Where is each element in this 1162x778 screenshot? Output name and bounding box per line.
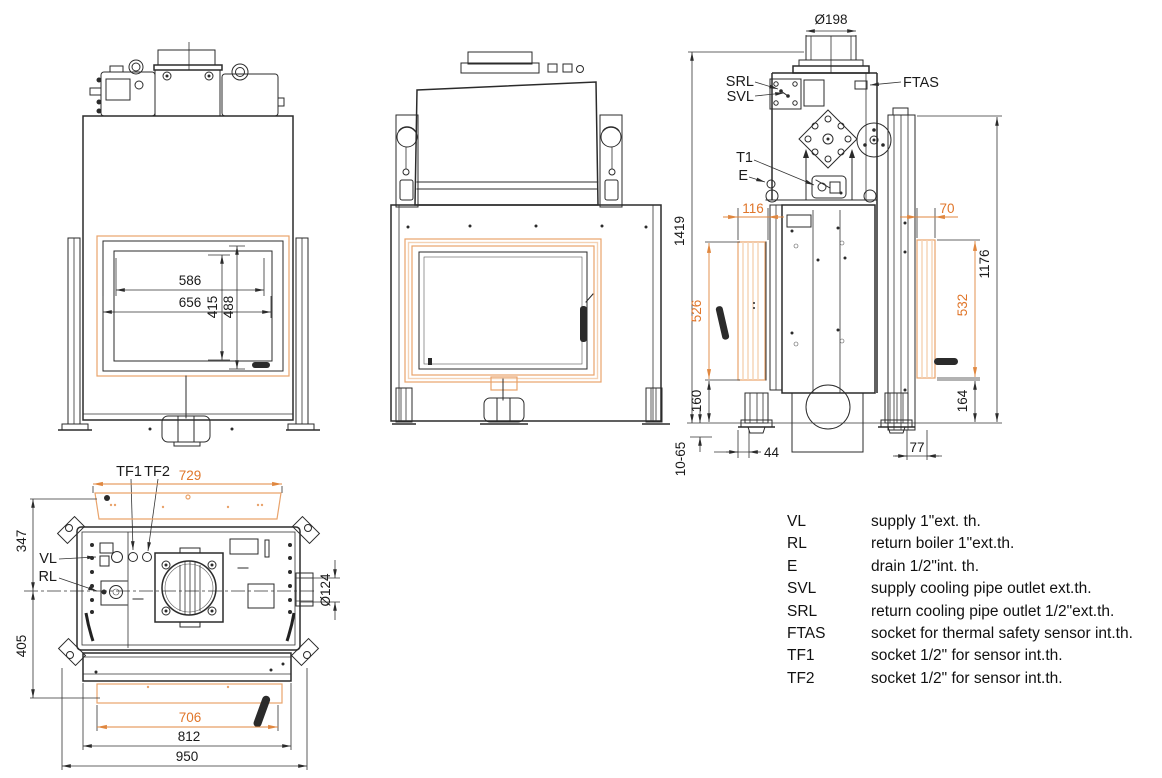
dim-foot-adjust: 10-65 xyxy=(673,442,688,477)
legend-desc: supply cooling pipe outlet ext.th. xyxy=(871,578,1147,600)
legend-key: SRL xyxy=(787,601,871,623)
legend-row: SVLsupply cooling pipe outlet ext.th. xyxy=(787,578,1162,600)
dim-rear-height: 1176 xyxy=(977,249,992,278)
door-trim-band xyxy=(409,243,598,379)
dim-front-base-height: 160 xyxy=(689,390,704,413)
front-flange xyxy=(97,684,282,703)
side-view: Ø198 SRL SVL FTAS T1 E xyxy=(672,12,1002,476)
port-tf2 xyxy=(143,553,152,562)
dim-rear-panel-height: 532 xyxy=(955,294,970,317)
legend-desc: return boiler 1"ext.th. xyxy=(871,533,1147,555)
legend-row: TF2socket 1/2" for sensor int.th. xyxy=(787,668,1162,690)
label-vl: VL xyxy=(39,551,57,567)
legend-key: VL xyxy=(787,511,871,533)
dim-rear-base-height: 164 xyxy=(955,389,970,412)
legend-key: RL xyxy=(787,533,871,555)
dim-rear-depth: 347 xyxy=(14,530,29,553)
dim-flue-diameter: Ø198 xyxy=(814,12,847,27)
legend-row: Edrain 1/2"int. th. xyxy=(787,556,1162,578)
dim-front-frame-depth: 116 xyxy=(742,201,764,216)
legend-desc: socket for thermal safety sensor int.th. xyxy=(871,623,1147,645)
dim-door-width: 656 xyxy=(179,295,202,310)
handle-tool xyxy=(252,695,271,729)
legend-key: E xyxy=(787,556,871,578)
label-rl: RL xyxy=(38,569,57,585)
top-flange xyxy=(95,493,281,519)
legend-row: VLsupply 1"ext. th. xyxy=(787,511,1162,533)
dim-rear-foot-offset: 77 xyxy=(909,440,924,455)
door-handle-side xyxy=(715,306,729,341)
legend-desc: return cooling pipe outlet 1/2"ext.th. xyxy=(871,601,1147,623)
dim-top-flange-width: 729 xyxy=(179,468,202,483)
label-ftas: FTAS xyxy=(903,75,939,91)
dim-body-width: 812 xyxy=(178,729,201,744)
dim-front-foot-offset: 44 xyxy=(764,445,780,460)
port-rl xyxy=(110,586,123,599)
legend-desc: drain 1/2"int. th. xyxy=(871,556,1147,578)
dim-glass-height: 415 xyxy=(205,296,220,319)
dim-overall-height: 1419 xyxy=(672,216,687,246)
legend: VLsupply 1"ext. th. RLreturn boiler 1"ex… xyxy=(787,511,1162,690)
port-tf1 xyxy=(129,553,138,562)
legend-row: TF1socket 1/2" for sensor int.th. xyxy=(787,645,1162,667)
label-tf1: TF1 xyxy=(116,464,142,480)
front-view: 586 656 415 488 xyxy=(58,42,320,446)
legend-row: RLreturn boiler 1"ext.th. xyxy=(787,533,1162,555)
dim-front-frame-height: 526 xyxy=(689,300,704,323)
door-handle xyxy=(252,362,270,368)
dim-glass-width: 586 xyxy=(179,273,202,288)
door-handle xyxy=(580,306,587,342)
rear-handle xyxy=(934,358,958,365)
label-srl: SRL xyxy=(726,74,754,90)
legend-desc: supply 1"ext. th. xyxy=(871,511,1147,533)
legend-desc: socket 1/2" for sensor int.th. xyxy=(871,668,1147,690)
dim-front-depth: 405 xyxy=(14,635,29,658)
label-t1: T1 xyxy=(736,150,753,166)
port-vl xyxy=(112,552,123,563)
dim-rear-panel-depth: 70 xyxy=(939,201,954,216)
legend-desc: socket 1/2" for sensor int.th. xyxy=(871,645,1147,667)
legend-key: SVL xyxy=(787,578,871,600)
legend-row: FTASsocket for thermal safety sensor int… xyxy=(787,623,1162,645)
legend-row: SRLreturn cooling pipe outlet 1/2"ext.th… xyxy=(787,601,1162,623)
label-tf2: TF2 xyxy=(144,464,170,480)
dim-door-height: 488 xyxy=(221,296,236,319)
fan-opening xyxy=(162,561,216,615)
legend-key: TF1 xyxy=(787,645,871,667)
legend-key: FTAS xyxy=(787,623,871,645)
front-trim-panel xyxy=(738,242,765,380)
dim-overall-width: 950 xyxy=(176,749,199,764)
label-e: E xyxy=(738,168,748,184)
dim-front-frame-width: 706 xyxy=(179,710,202,725)
top-view: TF1 TF2 729 V xyxy=(14,464,340,770)
legend-key: TF2 xyxy=(787,668,871,690)
front-open-view xyxy=(391,52,670,424)
dim-flue-outlet-diameter: Ø124 xyxy=(318,573,333,607)
label-svl: SVL xyxy=(727,89,754,105)
